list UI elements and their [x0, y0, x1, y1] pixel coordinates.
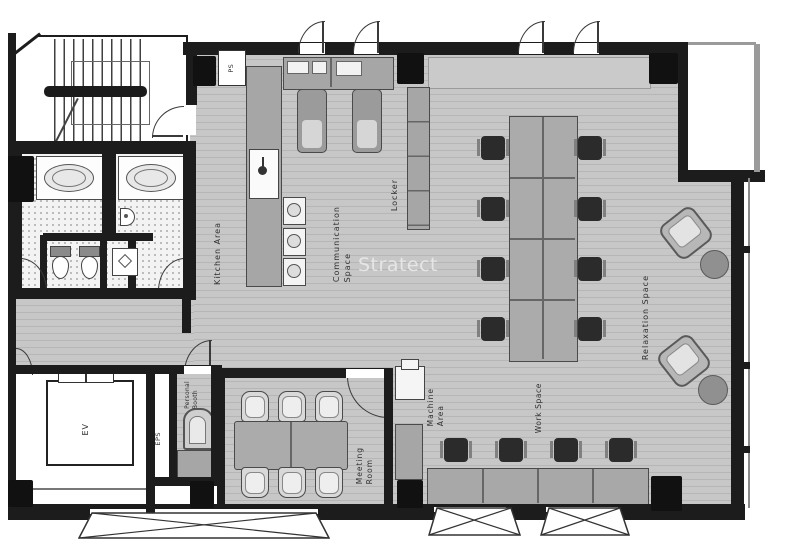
stair-door-leaf [152, 135, 183, 137]
stair-door-opening [182, 105, 196, 135]
work-desk-divider-1 [482, 469, 484, 503]
task-chair [578, 257, 602, 281]
watermark-text: Stratect [358, 254, 438, 276]
communication-label-line2: Space [343, 253, 353, 282]
wall-washroom-right [183, 141, 196, 300]
work-space-label: Work Space [534, 375, 543, 433]
meeting-chair [315, 467, 343, 498]
window-louver-1 [78, 512, 330, 540]
printer [395, 366, 425, 400]
kitchen-stool-2 [283, 228, 306, 256]
meeting-chair [241, 467, 269, 498]
balcony-left-wall [678, 42, 688, 182]
kitchen-faucet [258, 166, 267, 175]
kitchen-area-label: Kitchen Area [213, 150, 223, 285]
machine-area-label: Machine Area [426, 362, 445, 426]
window-mullion-2 [731, 362, 750, 369]
communication-sofa-1 [297, 89, 327, 153]
meeting-chair [278, 467, 306, 498]
kitchen-faucet-spout [262, 157, 264, 167]
task-chair [481, 136, 505, 160]
elevator-pit-line [16, 488, 146, 490]
meeting-chair [241, 391, 269, 422]
booth-door-opening [184, 366, 211, 374]
task-chair [481, 317, 505, 341]
machine-cabinet [395, 424, 423, 480]
ps-shaft-box: PS [218, 50, 246, 86]
meeting-room-label-line2: Room [365, 459, 374, 484]
stair-handrail [44, 86, 147, 97]
corridor-floor [14, 292, 194, 368]
column [8, 480, 33, 507]
work-space-label-text: Work Space [534, 383, 543, 433]
side-table-1 [700, 250, 729, 279]
wall-elevator-top [8, 365, 155, 374]
wall-top [183, 42, 697, 55]
personal-booth-label-line1: Personal [184, 381, 191, 409]
counter-appliance-1 [287, 61, 309, 74]
booth-cabinet [177, 450, 215, 478]
column [397, 53, 424, 84]
task-chair [578, 197, 602, 221]
locker-cabinet [407, 87, 430, 230]
meeting-chair [278, 391, 306, 422]
wall-eps-right [169, 365, 177, 486]
task-chair [578, 136, 602, 160]
kitchen-stool-1 [283, 197, 306, 225]
task-chair [578, 317, 602, 341]
entrance-door-leaf-4 [597, 21, 599, 53]
wall-meeting-left [217, 368, 225, 508]
task-chair [444, 438, 468, 462]
ps-label-text: PS [228, 64, 236, 73]
printer-top-tray [401, 359, 419, 370]
sink-basin-left-inner [52, 169, 86, 187]
utility-shaft [8, 156, 34, 202]
eps-label: EPS [155, 416, 163, 446]
counter-appliance-3 [336, 61, 362, 76]
desk-cluster-row-line-1 [510, 177, 575, 179]
locker-label-text: Locker [390, 179, 400, 211]
elevator-label: EV [81, 406, 91, 436]
window-outer-line [748, 178, 750, 508]
window-louver-3 [540, 506, 630, 537]
kitchen-area-label-text: Kitchen Area [213, 222, 223, 285]
desk-cluster-row-line-3 [510, 299, 575, 301]
entrance-door-leaf-2 [377, 21, 379, 53]
machine-area-label-line2: Area [436, 405, 445, 426]
communication-space-label: Communication Space [332, 176, 352, 282]
communication-label-line1: Communication [332, 206, 342, 282]
wall-bench-strip [428, 57, 651, 89]
task-chair [554, 438, 578, 462]
column [649, 53, 678, 84]
task-chair [481, 257, 505, 281]
balcony-top-border [688, 42, 756, 45]
booth-chair-arch-inner [189, 416, 206, 444]
toilet-stall-mid-wall [100, 235, 107, 292]
counter-appliance-2 [312, 61, 327, 74]
meeting-table-divider [290, 422, 292, 467]
relaxation-space-label-text: Relaxation Space [641, 275, 651, 360]
work-desk-divider-2 [537, 469, 539, 503]
urinal-drain-dot [124, 214, 128, 218]
column [193, 56, 216, 86]
balcony-bottom-wall [678, 170, 765, 182]
column [651, 476, 682, 511]
balcony-floor [688, 44, 756, 170]
communication-sofa-2 [352, 89, 382, 153]
window-mullion-3 [731, 446, 750, 453]
wall-right [731, 170, 744, 512]
task-chair [481, 197, 505, 221]
task-chair [609, 438, 633, 462]
eps-label-text: EPS [155, 432, 163, 446]
meeting-door-opening [346, 369, 384, 378]
relaxation-space-label: Relaxation Space [641, 234, 651, 360]
wall-core-stub [182, 299, 191, 333]
wall-washroom-bottom [8, 288, 196, 299]
meeting-room-label-line1: Meeting [355, 447, 364, 484]
floor-plan: EV EPS Personal Booth Kitchen Area Commu… [0, 0, 787, 542]
entrance-door-arc-2 [353, 21, 380, 53]
column [190, 481, 214, 508]
pantry-counter-divider [330, 58, 332, 87]
kitchen-stool-3 [283, 258, 306, 286]
window-louver-2 [428, 506, 521, 537]
column [397, 480, 423, 508]
entrance-door-leaf-1 [322, 21, 324, 53]
sink-basin-right-inner [134, 169, 168, 187]
personal-booth-label-line2: Booth [192, 390, 199, 409]
work-desk-divider-3 [592, 469, 594, 503]
entrance-door-leaf-3 [542, 21, 544, 53]
entrance-door-arc-1 [298, 21, 325, 53]
desk-cluster-row-line-2 [510, 238, 575, 240]
wall-stair-washroom-divider [8, 141, 196, 154]
meeting-room-label: Meeting Room [355, 424, 374, 484]
machine-area-label-line1: Machine [426, 388, 435, 426]
toilet-stall-top-wall [43, 233, 153, 241]
side-table-2 [698, 375, 728, 405]
entrance-door-arc-4 [573, 21, 600, 53]
meeting-chair [315, 391, 343, 422]
washroom-partition-mid [102, 150, 116, 236]
elevator-label-text: EV [81, 423, 91, 436]
wall-meeting-right [384, 368, 393, 508]
window-mullion-1 [731, 246, 750, 253]
locker-label: Locker [390, 157, 400, 211]
task-chair [499, 438, 523, 462]
balcony-right-border [754, 44, 760, 172]
entrance-door-arc-3 [518, 21, 545, 53]
wall-elevator-right [146, 365, 155, 518]
